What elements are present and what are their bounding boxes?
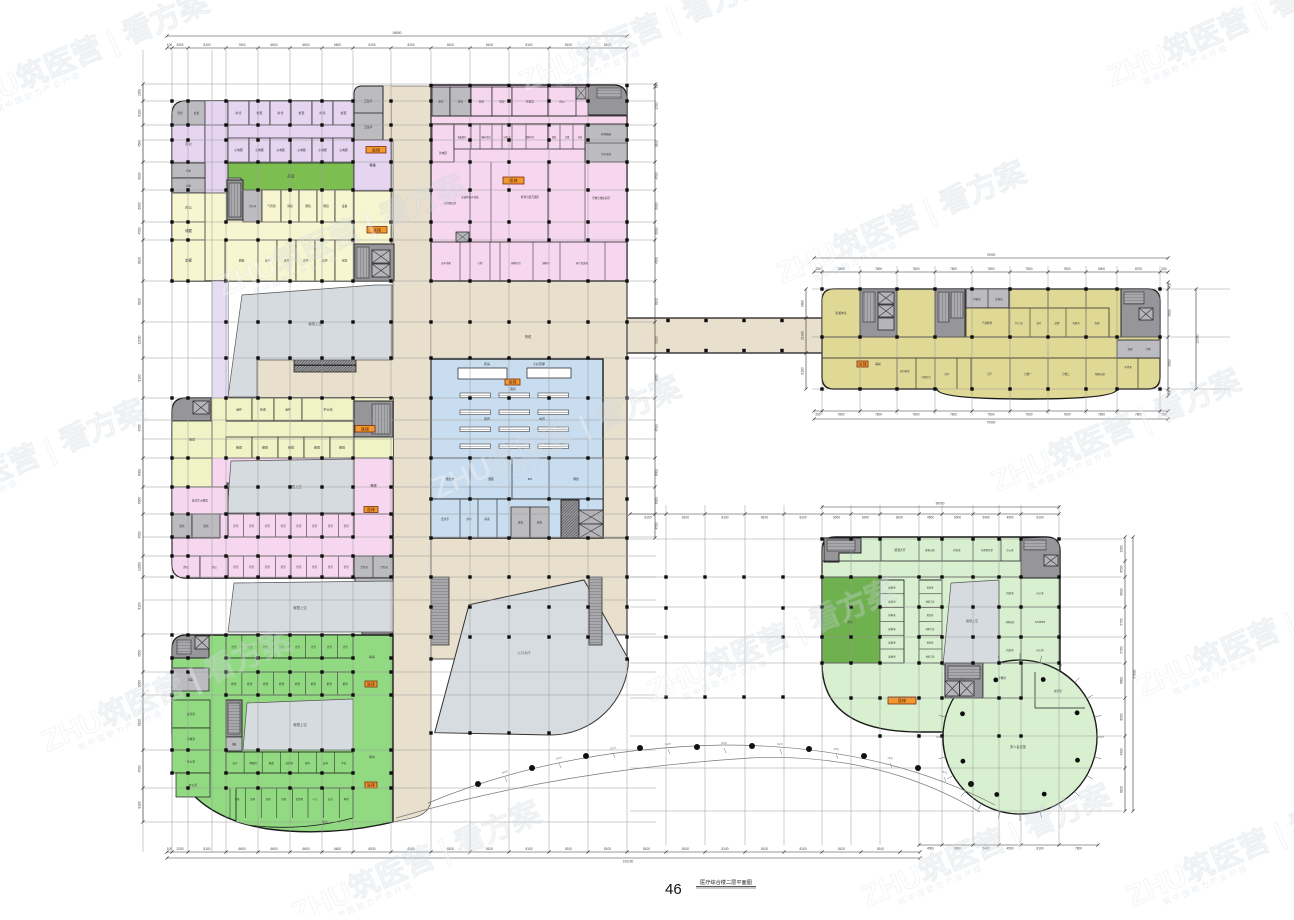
svg-text:8100: 8100 (138, 602, 142, 609)
svg-text:女更: 女更 (186, 184, 191, 188)
svg-text:BIX: BIX (528, 477, 533, 481)
svg-text:接种室: 接种室 (888, 655, 896, 659)
svg-text:处置: 处置 (1054, 321, 1060, 325)
svg-text:7600: 7600 (987, 413, 994, 417)
svg-text:8100: 8100 (655, 336, 659, 343)
svg-text:胸透: 胸透 (269, 761, 275, 765)
svg-text:8100: 8100 (801, 367, 805, 374)
svg-text:4500: 4500 (138, 227, 142, 234)
svg-text:8100: 8100 (721, 847, 728, 851)
svg-text:诊室: 诊室 (312, 524, 318, 528)
svg-text:蒸汽灭菌间: 蒸汽灭菌间 (576, 261, 589, 265)
svg-text:走廊: 走廊 (533, 362, 539, 366)
svg-text:检查: 检查 (298, 110, 304, 115)
svg-text:设备: 设备 (342, 204, 348, 208)
svg-text:6600: 6600 (1120, 588, 1124, 595)
svg-text:8100: 8100 (799, 516, 806, 520)
svg-text:8700: 8700 (1135, 267, 1142, 271)
svg-text:妇儿: 妇儿 (328, 797, 334, 801)
svg-text:辅料打包: 辅料打包 (511, 261, 521, 265)
svg-text:300: 300 (1168, 283, 1172, 289)
svg-text:8100: 8100 (525, 43, 532, 47)
svg-text:治疗: 治疗 (236, 407, 242, 412)
svg-text:8100: 8100 (407, 43, 414, 47)
svg-text:诊室: 诊室 (281, 565, 287, 569)
svg-text:留观: 留观 (314, 445, 320, 450)
svg-text:候诊室: 候诊室 (1054, 689, 1062, 693)
svg-text:检查: 检查 (343, 682, 349, 686)
svg-text:7800: 7800 (987, 267, 994, 271)
svg-text:治疗: 治疗 (1036, 321, 1042, 325)
svg-text:7800: 7800 (875, 267, 882, 271)
svg-text:70900: 70900 (987, 253, 996, 257)
svg-text:诊室: 诊室 (281, 524, 287, 528)
svg-text:留观大厅: 留观大厅 (894, 548, 905, 552)
svg-text:药房: 药房 (287, 174, 295, 179)
svg-text:4500: 4500 (655, 522, 659, 529)
svg-text:7800: 7800 (875, 413, 882, 417)
svg-text:检查: 检查 (279, 682, 285, 686)
svg-text:储藏: 储藏 (185, 228, 192, 233)
svg-text:1670: 1670 (665, 742, 672, 746)
svg-text:诊室: 诊室 (250, 797, 256, 801)
svg-text:4500: 4500 (927, 516, 934, 520)
svg-text:留观: 留观 (288, 445, 294, 450)
svg-text:女更衣: 女更衣 (995, 297, 1003, 301)
svg-text:检查: 检查 (340, 110, 346, 115)
svg-text:6000: 6000 (655, 469, 659, 476)
svg-text:8100: 8100 (138, 374, 142, 381)
svg-text:办公室: 办公室 (1036, 648, 1044, 652)
svg-text:手敷间: 手敷间 (998, 676, 1006, 680)
svg-text:不育: 不育 (341, 761, 347, 765)
svg-text:女更: 女更 (194, 111, 200, 115)
svg-text:等候: 等候 (875, 362, 881, 366)
svg-text:1670: 1670 (777, 742, 784, 746)
svg-text:神经: 神经 (344, 797, 350, 801)
svg-text:诊室: 诊室 (296, 524, 302, 528)
svg-text:6600: 6600 (302, 43, 309, 47)
svg-text:2200: 2200 (138, 89, 142, 96)
svg-text:250: 250 (1161, 267, 1167, 271)
svg-text:医梯: 医梯 (510, 177, 518, 183)
svg-text:8100: 8100 (525, 847, 532, 851)
svg-text:卫生间: 卫生间 (249, 204, 257, 208)
svg-text:等候: 等候 (369, 163, 376, 168)
svg-text:7800: 7800 (1063, 267, 1070, 271)
svg-text:诊室: 诊室 (233, 524, 239, 528)
svg-text:医梯: 医梯 (367, 506, 375, 512)
svg-text:5400: 5400 (982, 516, 989, 520)
svg-text:21900: 21900 (801, 331, 805, 340)
svg-text:心电图: 心电图 (297, 148, 306, 152)
svg-text:100: 100 (655, 83, 659, 89)
svg-text:4500: 4500 (138, 531, 142, 538)
svg-text:更衣: 更衣 (537, 521, 543, 525)
svg-text:诊室: 诊室 (295, 645, 301, 649)
svg-text:诊室: 诊室 (266, 797, 272, 801)
svg-text:1300: 1300 (1120, 545, 1124, 552)
svg-text:检查包装灭菌区: 检查包装灭菌区 (521, 195, 540, 199)
svg-text:100: 100 (167, 43, 173, 47)
svg-text:裁限上空: 裁限上空 (293, 605, 307, 610)
svg-text:男更: 男更 (177, 111, 183, 115)
svg-text:8500: 8500 (1120, 565, 1124, 572)
svg-text:8100: 8100 (203, 847, 210, 851)
svg-text:7600: 7600 (950, 413, 957, 417)
svg-text:12000: 12000 (138, 562, 142, 571)
svg-text:8100: 8100 (655, 298, 659, 305)
svg-text:8100: 8100 (604, 847, 611, 851)
svg-text:诊室: 诊室 (312, 565, 318, 569)
svg-text:露台: 露台 (322, 819, 328, 824)
svg-text:8100: 8100 (138, 257, 142, 264)
svg-text:污物打包: 污物打包 (921, 375, 931, 379)
svg-text:6000: 6000 (862, 516, 869, 520)
svg-text:裁限上空: 裁限上空 (966, 618, 978, 623)
svg-text:心电图: 心电图 (339, 148, 348, 152)
svg-text:裁限上空: 裁限上空 (293, 722, 307, 727)
svg-text:诊室: 诊室 (249, 565, 255, 569)
svg-text:6000: 6000 (655, 227, 659, 234)
svg-text:6000: 6000 (138, 469, 142, 476)
svg-text:1670: 1670 (721, 741, 727, 745)
svg-text:8100: 8100 (799, 847, 806, 851)
svg-text:7800: 7800 (912, 413, 919, 417)
svg-text:6000: 6000 (1120, 713, 1124, 720)
svg-text:12300: 12300 (1196, 334, 1200, 343)
svg-text:示教室: 示教室 (526, 100, 535, 104)
svg-text:浴厕: 浴厕 (1127, 347, 1133, 351)
svg-text:3200: 3200 (176, 847, 183, 851)
svg-text:7800: 7800 (1098, 413, 1105, 417)
svg-text:4500: 4500 (138, 140, 142, 147)
svg-text:污物分类处存区: 污物分类处存区 (592, 196, 611, 200)
svg-text:医疗服务: 医疗服务 (900, 369, 910, 373)
svg-text:会诊室 示教室: 会诊室 示教室 (192, 499, 209, 503)
svg-text:8100: 8100 (138, 298, 142, 305)
svg-text:7800: 7800 (912, 267, 919, 271)
svg-text:6600: 6600 (1120, 677, 1124, 684)
svg-text:心电图: 心电图 (234, 148, 243, 152)
svg-text:诊室: 诊室 (328, 524, 334, 528)
svg-text:分娩二: 分娩二 (1062, 372, 1070, 376)
svg-text:4500: 4500 (655, 424, 659, 431)
svg-text:医疗综合楼二层平面图: 医疗综合楼二层平面图 (700, 878, 752, 886)
svg-text:男更衣: 男更衣 (973, 297, 981, 301)
svg-text:处置室: 处置室 (286, 761, 294, 765)
svg-text:待产: 待产 (987, 372, 993, 376)
svg-text:处置室: 处置室 (296, 797, 304, 801)
svg-text:诊室: 诊室 (328, 565, 334, 569)
svg-text:3200: 3200 (176, 43, 183, 47)
svg-text:取药: 取药 (510, 387, 516, 391)
svg-text:5700: 5700 (1120, 646, 1124, 653)
svg-text:污车清洗: 污车清洗 (601, 152, 612, 156)
svg-text:250: 250 (815, 413, 821, 417)
svg-text:检查室: 检查室 (953, 548, 961, 552)
svg-text:心电图: 心电图 (255, 148, 264, 152)
svg-text:等候: 等候 (370, 483, 377, 488)
svg-text:7600: 7600 (1063, 413, 1070, 417)
svg-text:肿瘤科: 肿瘤科 (249, 761, 257, 765)
svg-text:检查: 检查 (247, 682, 253, 686)
svg-text:药房: 药房 (484, 361, 490, 366)
svg-text:检查: 检查 (311, 682, 317, 686)
svg-text:等候: 等候 (525, 334, 532, 339)
svg-text:皮科: 皮科 (323, 761, 329, 765)
svg-text:接种室: 接种室 (888, 641, 896, 645)
svg-text:听诊: 听诊 (319, 110, 325, 115)
svg-text:6000: 6000 (833, 516, 840, 520)
svg-text:12000: 12000 (138, 335, 142, 344)
svg-text:产前检查: 产前检查 (982, 321, 993, 325)
svg-text:病案: 病案 (484, 517, 490, 521)
svg-text:隔离分娩: 隔离分娩 (1095, 372, 1105, 376)
svg-text:7800: 7800 (1025, 267, 1032, 271)
svg-text:小儿: 小儿 (312, 797, 318, 801)
svg-text:6530: 6530 (368, 847, 375, 851)
svg-text:诊室: 诊室 (311, 645, 317, 649)
svg-text:9600: 9600 (801, 300, 805, 307)
svg-text:医梯: 医梯 (367, 681, 375, 687)
svg-text:8100: 8100 (565, 847, 572, 851)
svg-text:浴厕: 浴厕 (1094, 321, 1100, 325)
svg-text:8100: 8100 (1036, 847, 1043, 851)
svg-text:8100: 8100 (138, 109, 142, 116)
svg-text:8100: 8100 (203, 43, 210, 47)
svg-text:检查: 检查 (263, 682, 269, 686)
svg-text:8100: 8100 (877, 847, 884, 851)
svg-text:诊室: 诊室 (281, 797, 287, 801)
svg-text:更衣: 更衣 (438, 100, 444, 104)
svg-text:听诊: 听诊 (235, 110, 241, 115)
svg-text:办公: 办公 (185, 141, 192, 146)
svg-text:6900: 6900 (1098, 267, 1105, 271)
svg-text:6600: 6600 (270, 847, 277, 851)
svg-text:诊室: 诊室 (265, 524, 271, 528)
svg-text:8100: 8100 (682, 516, 689, 520)
svg-text:5750: 5750 (1120, 618, 1124, 625)
svg-text:6600: 6600 (238, 847, 245, 851)
svg-text:8100: 8100 (1120, 786, 1124, 793)
svg-text:手术室: 手术室 (1124, 365, 1132, 369)
svg-text:办公: 办公 (559, 100, 565, 104)
svg-text:检查: 检查 (231, 682, 237, 686)
svg-text:94800: 94800 (393, 31, 402, 35)
svg-text:100: 100 (167, 847, 173, 851)
svg-text:8100: 8100 (682, 847, 689, 851)
svg-text:诊室: 诊室 (344, 524, 350, 528)
svg-text:4500: 4500 (138, 765, 142, 772)
svg-text:更衣: 更衣 (203, 524, 209, 528)
svg-text:8100: 8100 (447, 43, 454, 47)
svg-text:走廊: 走廊 (185, 258, 192, 263)
svg-text:诊室: 诊室 (296, 565, 302, 569)
svg-text:90000: 90000 (936, 502, 945, 506)
svg-text:值班: 值班 (499, 100, 505, 104)
svg-text:7800: 7800 (837, 413, 844, 417)
svg-text:等候: 等候 (369, 754, 375, 759)
svg-text:7600: 7600 (1025, 413, 1032, 417)
svg-text:运车消毒: 运车消毒 (441, 261, 451, 265)
svg-text:6600: 6600 (270, 43, 277, 47)
svg-text:7800: 7800 (1075, 847, 1082, 851)
svg-text:检查: 检查 (327, 682, 333, 686)
svg-text:男更: 男更 (186, 169, 191, 173)
svg-text:70900: 70900 (987, 421, 996, 425)
svg-text:8100: 8100 (655, 140, 659, 147)
svg-text:留观: 留观 (339, 445, 345, 450)
svg-text:网络: 网络 (573, 477, 579, 481)
svg-text:6600: 6600 (334, 43, 341, 47)
svg-text:护士站: 护士站 (323, 407, 332, 412)
svg-text:医梯: 医梯 (509, 379, 517, 385)
svg-text:家属休息: 家属休息 (835, 311, 846, 315)
svg-text:医梯: 医梯 (367, 782, 375, 788)
svg-text:肠镜: 肠镜 (305, 204, 311, 208)
svg-text:肠镜: 肠镜 (323, 204, 329, 208)
svg-text:9600: 9600 (1168, 309, 1172, 316)
svg-text:等候: 等候 (369, 654, 375, 659)
svg-text:9600: 9600 (1168, 359, 1172, 366)
svg-text:卫生间: 卫生间 (380, 565, 388, 569)
svg-text:4500: 4500 (655, 257, 659, 264)
svg-text:8100: 8100 (138, 801, 142, 808)
svg-text:卫生间: 卫生间 (360, 565, 368, 569)
svg-text:多人会议室: 多人会议室 (1010, 744, 1026, 749)
svg-text:待产: 待产 (944, 372, 950, 376)
svg-text:7600: 7600 (238, 43, 245, 47)
svg-text:检查: 检查 (256, 110, 262, 115)
svg-text:6000: 6000 (138, 172, 142, 179)
svg-text:8100: 8100 (368, 43, 375, 47)
svg-text:8100: 8100 (838, 847, 845, 851)
svg-text:4500: 4500 (138, 650, 142, 657)
svg-text:6000: 6000 (954, 516, 961, 520)
svg-text:污物: 污物 (478, 261, 483, 265)
svg-text:6000: 6000 (138, 202, 142, 209)
svg-text:会议室: 会议室 (441, 517, 449, 521)
svg-text:更衣: 更衣 (179, 524, 185, 528)
svg-text:4500: 4500 (1006, 516, 1013, 520)
svg-text:办公室: 办公室 (189, 783, 198, 787)
svg-text:诊室: 诊室 (233, 565, 239, 569)
svg-text:6000: 6000 (138, 497, 142, 504)
svg-text:6600: 6600 (302, 847, 309, 851)
svg-text:诊室: 诊室 (265, 565, 271, 569)
svg-text:8100: 8100 (486, 43, 493, 47)
svg-text:诊室: 诊室 (344, 565, 350, 569)
svg-text:留观: 留观 (236, 445, 242, 450)
svg-text:8100: 8100 (761, 516, 768, 520)
svg-text:8100: 8100 (896, 516, 903, 520)
svg-text:档案室: 档案室 (1006, 591, 1014, 595)
svg-text:卫生间: 卫生间 (364, 125, 373, 129)
svg-text:开颅器械: 开颅器械 (601, 132, 612, 136)
svg-text:2200: 2200 (655, 102, 659, 109)
svg-text:药库: 药库 (539, 361, 545, 366)
svg-text:7800: 7800 (950, 267, 957, 271)
svg-text:诊室: 诊室 (249, 524, 255, 528)
svg-text:洗婴间: 洗婴间 (1072, 321, 1080, 325)
svg-text:更衣: 更衣 (458, 100, 464, 104)
svg-text:8100: 8100 (1036, 516, 1043, 520)
svg-text:诊室: 诊室 (343, 645, 349, 649)
svg-text:6000: 6000 (655, 202, 659, 209)
svg-text:气管镜: 气管镜 (267, 204, 276, 208)
svg-text:心电图: 心电图 (318, 148, 327, 152)
svg-text:心电图: 心电图 (276, 148, 285, 152)
svg-text:办公: 办公 (466, 517, 472, 521)
svg-text:污物: 污物 (1145, 347, 1151, 351)
svg-text:接种室: 接种室 (888, 613, 896, 617)
svg-text:医梯: 医梯 (372, 146, 380, 152)
svg-text:8100: 8100 (761, 847, 768, 851)
svg-text:化验: 化验 (342, 259, 348, 263)
svg-text:处置: 处置 (260, 407, 266, 412)
svg-text:接种室: 接种室 (888, 627, 896, 631)
svg-text:骨科: 骨科 (305, 761, 311, 765)
svg-text:新电阻: 新电阻 (439, 151, 447, 155)
svg-text:4300: 4300 (1120, 748, 1124, 755)
svg-text:留观: 留观 (262, 445, 268, 450)
svg-text:46: 46 (665, 881, 682, 898)
svg-text:4500: 4500 (655, 172, 659, 179)
svg-text:诊室: 诊室 (327, 645, 333, 649)
svg-text:护士站: 护士站 (1015, 321, 1023, 325)
svg-text:8100: 8100 (721, 516, 728, 520)
svg-text:检查: 检查 (295, 682, 301, 686)
svg-text:办公室: 办公室 (1036, 591, 1044, 595)
svg-text:8100: 8100 (643, 847, 650, 851)
svg-text:入口大厅: 入口大厅 (517, 650, 531, 655)
svg-text:档案室: 档案室 (1006, 648, 1014, 652)
svg-text:办公: 办公 (185, 205, 192, 210)
svg-text:192100: 192100 (623, 860, 634, 864)
svg-text:听诊: 听诊 (277, 110, 283, 115)
svg-text:更衣: 更衣 (518, 521, 524, 525)
svg-text:8100: 8100 (644, 516, 651, 520)
svg-text:值班: 值班 (479, 100, 485, 104)
svg-text:医梯: 医梯 (859, 361, 867, 367)
svg-text:诊室: 诊室 (234, 797, 240, 801)
svg-text:医梯: 医梯 (361, 425, 369, 431)
svg-text:治疗: 治疗 (232, 761, 238, 765)
svg-text:6000: 6000 (655, 497, 659, 504)
svg-text:分娩一: 分娩一 (1024, 372, 1032, 376)
svg-text:6600: 6600 (334, 847, 341, 851)
